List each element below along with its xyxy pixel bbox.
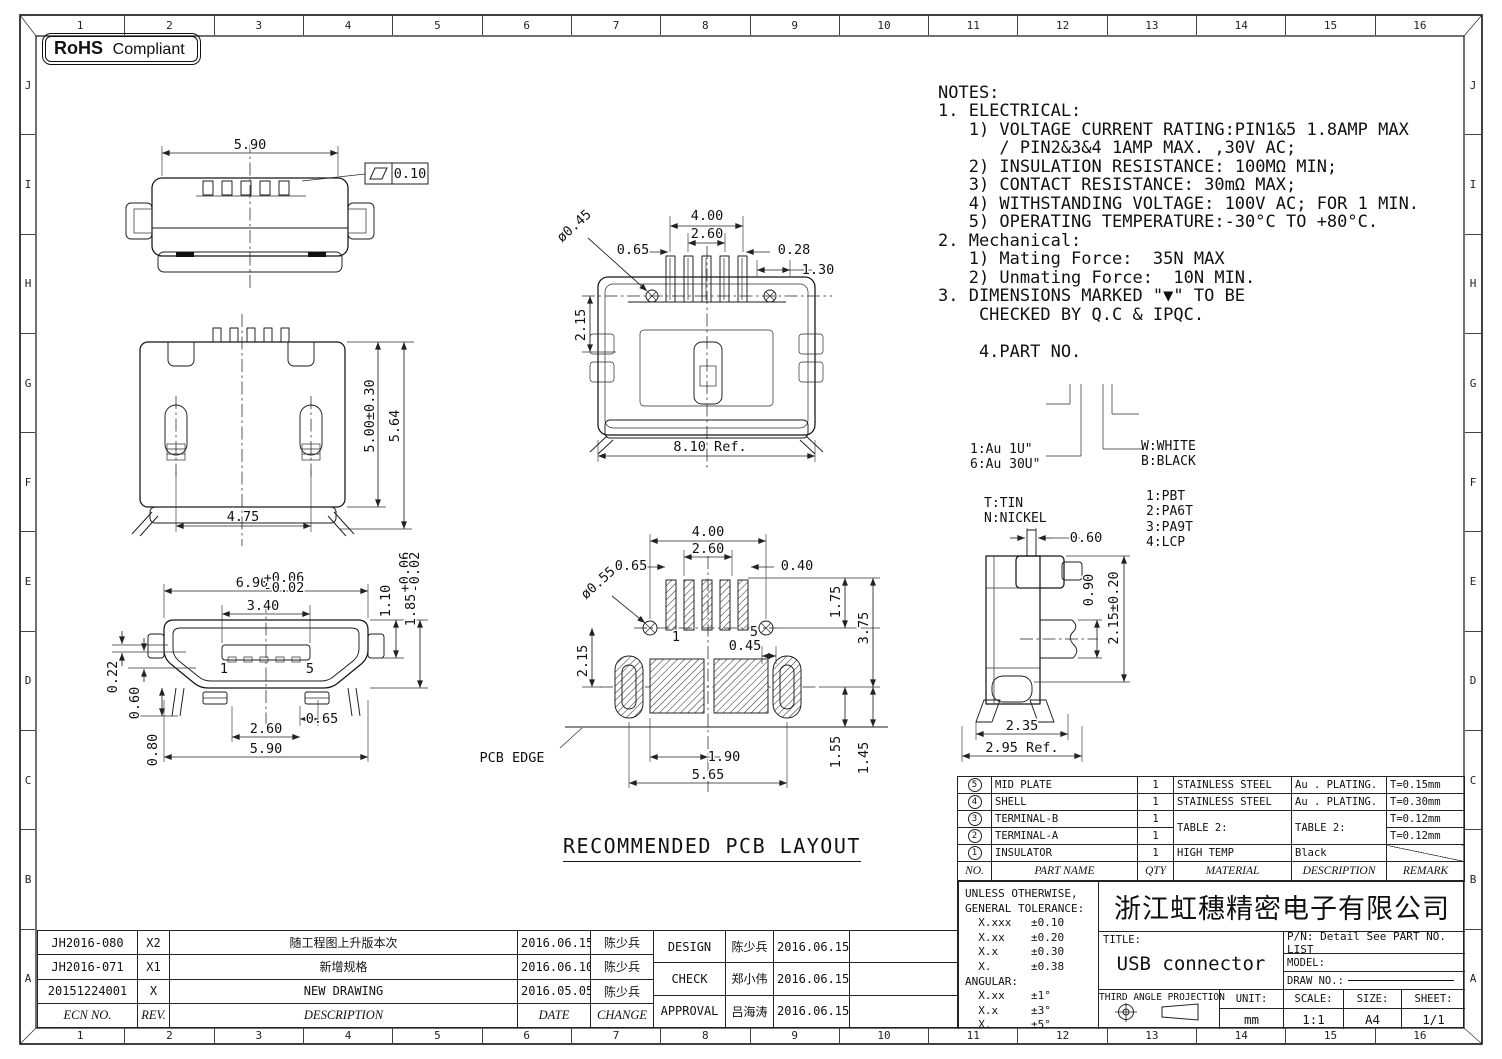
unit-cell: UNIT: mm bbox=[1219, 989, 1283, 1029]
grid-row-label: J bbox=[1465, 36, 1481, 135]
part-name: INSULATOR bbox=[992, 845, 1138, 862]
dim-label: 1 bbox=[220, 661, 228, 677]
grid-row-label: D bbox=[1465, 632, 1481, 731]
dim-label: 0.60 bbox=[127, 687, 143, 720]
title-label: TITLE: bbox=[1103, 934, 1279, 946]
grid-row-label: E bbox=[1465, 532, 1481, 631]
grid-col-label: 14 bbox=[1197, 1028, 1286, 1043]
grid-col-label: 9 bbox=[751, 16, 840, 35]
note-line: 5) OPERATING TEMPERATURE:-30°C TO +80°C. bbox=[938, 213, 1419, 232]
dim-label: 0.28 bbox=[778, 242, 811, 258]
grid-col-label: 6 bbox=[483, 16, 572, 35]
dim-label: 2.95 Ref. bbox=[985, 740, 1058, 756]
dim-label: 8.10 Ref. bbox=[673, 439, 746, 455]
change: CHANGE bbox=[591, 1003, 654, 1027]
grid-col-label: 8 bbox=[661, 16, 750, 35]
change: 陈少兵 bbox=[591, 955, 654, 979]
drawing-sheet: 5.900.105.00±0.305.644.756.90+0.06-0.023… bbox=[0, 0, 1502, 1059]
ecn-no: 20151224001 bbox=[38, 979, 138, 1003]
tolerance-label: UNLESS OTHERWISE, bbox=[965, 887, 1031, 902]
note-line: 3) CONTACT RESISTANCE: 30mΩ MAX; bbox=[938, 176, 1419, 195]
dim-label: 0.65 bbox=[615, 558, 648, 574]
tolerance-line: X.xx ±0.20 bbox=[965, 931, 1092, 946]
date: 2016.05.05 bbox=[518, 979, 591, 1003]
dim-label: 2.60 bbox=[691, 226, 724, 242]
note-line: NOTES: bbox=[938, 84, 1419, 103]
dim-label: 0.60 bbox=[1070, 530, 1103, 546]
note-line: / PIN2&3&4 1AMP MAX. ,30V AC; bbox=[938, 139, 1419, 158]
scale-value: 1:1 bbox=[1284, 1009, 1343, 1029]
part-material: STAINLESS STEEL bbox=[1174, 777, 1292, 794]
description: 新增规格 bbox=[170, 955, 518, 979]
tolerance-line: ANGULAR: bbox=[965, 975, 1092, 990]
tolerance-line: X. ±5° bbox=[965, 1018, 1092, 1033]
dim-label: 2.60 bbox=[692, 541, 725, 557]
part-remark-diagonal bbox=[1387, 845, 1465, 862]
tolerance-label: ANGULAR: bbox=[965, 975, 1031, 990]
part-description: Black bbox=[1292, 845, 1387, 862]
revision-row: JH2016-080 X2 随工程图上升版本次 2016.06.15 陈少兵 bbox=[38, 931, 654, 955]
grid-col-label: 5 bbox=[393, 1028, 482, 1043]
note-line: 1) Mating Force: 35N MAX bbox=[938, 250, 1419, 269]
note-line: 3. DIMENSIONS MARKED "▼" TO BE bbox=[938, 287, 1419, 306]
grid-row-label: G bbox=[21, 334, 35, 433]
grid-col-label: 3 bbox=[215, 16, 304, 35]
part-name: TERMINAL-B bbox=[992, 811, 1138, 828]
parts-header-row: NO. PART NAME QTY MATERIAL DESCRIPTION R… bbox=[958, 862, 1465, 881]
tolerance-line: X.xx ±1° bbox=[965, 989, 1092, 1004]
tolerance-value: ±0.30 bbox=[1031, 945, 1064, 960]
rohs-badge: RoHS Compliant bbox=[42, 33, 201, 65]
unit-value: mm bbox=[1220, 1009, 1283, 1029]
rohs-bold-text: RoHS bbox=[54, 38, 103, 58]
dim-label: 5 bbox=[306, 661, 314, 677]
dim-label: 5 bbox=[750, 624, 758, 640]
tolerance-value: ±0.20 bbox=[1031, 931, 1064, 946]
rohs-rest-text: Compliant bbox=[113, 41, 185, 58]
note-line: 1) VOLTAGE CURRENT RATING:PIN1&5 1.8AMP … bbox=[938, 121, 1419, 140]
revision-row: ECN NO. REV. DESCRIPTION DATE CHANGE bbox=[38, 1003, 654, 1027]
rev: REV. bbox=[138, 1003, 170, 1027]
grid-col-label: 10 bbox=[840, 16, 929, 35]
grid-row-label: G bbox=[1465, 334, 1481, 433]
view-top bbox=[126, 140, 428, 288]
part-material: STAINLESS STEEL bbox=[1174, 794, 1292, 811]
date: 2016.06.15 bbox=[518, 931, 591, 955]
dim-label: 0.40 bbox=[781, 558, 814, 574]
part-qty: 1 bbox=[1138, 828, 1174, 845]
grid-col-label: 6 bbox=[483, 1028, 572, 1043]
grid-col-label: 7 bbox=[572, 16, 661, 35]
rev: X2 bbox=[138, 931, 170, 955]
tolerance-value: ±5° bbox=[1031, 1018, 1051, 1033]
note-line: CHECKED BY Q.C & IPQC. bbox=[938, 306, 1419, 325]
model-cell: MODEL: bbox=[1283, 953, 1465, 971]
grid-col-label: 10 bbox=[840, 1028, 929, 1043]
dim-label: 5.65 bbox=[692, 767, 725, 783]
ecn-no: JH2016-071 bbox=[38, 955, 138, 979]
sheet-cell: SHEET: 1/1 bbox=[1401, 989, 1465, 1029]
size-value: A4 bbox=[1344, 1009, 1401, 1029]
grid-col-label: 5 bbox=[393, 16, 482, 35]
change: 陈少兵 bbox=[591, 979, 654, 1003]
description: NEW DRAWING bbox=[170, 979, 518, 1003]
part-remark: T=0.12mm bbox=[1387, 811, 1465, 828]
part-name: SHELL bbox=[992, 794, 1138, 811]
dim-label: 1.45 bbox=[856, 742, 872, 775]
grid-row-label: C bbox=[1465, 731, 1481, 830]
title-cell: TITLE: USB connector bbox=[1098, 931, 1283, 989]
note-line: 2) Unmating Force: 10N MIN. bbox=[938, 269, 1419, 288]
dim-label: 1.30 bbox=[802, 262, 835, 278]
parts-row: 5 MID PLATE 1 STAINLESS STEEL Au . PLATI… bbox=[958, 777, 1465, 794]
tolerance-label: GENERAL TOLERANCE: bbox=[965, 902, 1031, 917]
grid-row-label: B bbox=[1465, 830, 1481, 929]
ecn-no: ECN NO. bbox=[38, 1003, 138, 1027]
sheet-label: SHEET: bbox=[1402, 990, 1465, 1009]
grid-row-label: A bbox=[1465, 930, 1481, 1028]
change: 陈少兵 bbox=[591, 931, 654, 955]
note-line: 4.PART NO. bbox=[938, 343, 1419, 362]
grid-col-label: 3 bbox=[215, 1028, 304, 1043]
title-block: UNLESS OTHERWISE, GENERAL TOLERANCE: X.x… bbox=[957, 880, 1464, 1028]
part-no-circle: 2 bbox=[968, 829, 982, 843]
note-line: 2. Mechanical: bbox=[938, 232, 1419, 251]
grid-col-label: 15 bbox=[1286, 1028, 1375, 1043]
dim-label: 2.60 bbox=[250, 721, 283, 737]
col-description: DESCRIPTION bbox=[1292, 862, 1387, 881]
dim-label: 0.65 bbox=[617, 242, 650, 258]
tolerance-line: UNLESS OTHERWISE, bbox=[965, 887, 1092, 902]
dim-label: 0.45 bbox=[729, 638, 762, 654]
grid-col-label: 9 bbox=[751, 1028, 840, 1043]
approval-role: APPROVAL bbox=[654, 995, 726, 1027]
note-line: 4) WITHSTANDING VOLTAGE: 100V AC; FOR 1 … bbox=[938, 195, 1419, 214]
ecn-no: JH2016-080 bbox=[38, 931, 138, 955]
grid-band-bottom: 12345678910111213141516 bbox=[36, 1028, 1464, 1043]
dim-label: 0.10 bbox=[394, 166, 427, 182]
dim-label: -0.02 bbox=[407, 552, 423, 593]
dim-label: 4.00 bbox=[691, 208, 724, 224]
approval-sign bbox=[850, 931, 958, 963]
part-description-merged: TABLE 2: bbox=[1292, 811, 1387, 845]
description: DESCRIPTION bbox=[170, 1003, 518, 1027]
size-cell: SIZE: A4 bbox=[1343, 989, 1401, 1029]
tolerance-label: X.xx bbox=[965, 931, 1031, 946]
part-name: MID PLATE bbox=[992, 777, 1138, 794]
tolerance-line: X.x ±0.30 bbox=[965, 945, 1092, 960]
part-qty: 1 bbox=[1138, 777, 1174, 794]
dim-label: 1.10 bbox=[378, 585, 394, 618]
dim-label: 3.40 bbox=[247, 598, 280, 614]
dim-label: 0.90 bbox=[1081, 574, 1097, 607]
legend-line: 2:PA6T bbox=[1146, 504, 1193, 520]
tolerance-label: X.x bbox=[965, 1004, 1031, 1019]
legend-line: 4:LCP bbox=[1146, 535, 1193, 551]
dim-label: 3.75 bbox=[856, 612, 872, 645]
tolerance-value: ±3° bbox=[1031, 1004, 1051, 1019]
dim-label: 2.15 bbox=[573, 309, 589, 342]
scale-label: SCALE: bbox=[1284, 990, 1343, 1009]
dim-label: 1.90 bbox=[708, 749, 741, 765]
part-remark: T=0.15mm bbox=[1387, 777, 1465, 794]
grid-col-label: 2 bbox=[125, 1028, 214, 1043]
approval-date: 2016.06.15 bbox=[774, 995, 850, 1027]
grid-row-label: E bbox=[21, 532, 35, 631]
tolerance-label: X.x bbox=[965, 945, 1031, 960]
company-name: 浙江虹穗精密电子有限公司 bbox=[1098, 881, 1465, 931]
approval-name: 吕海涛 bbox=[726, 995, 774, 1027]
col-qty: QTY bbox=[1138, 862, 1174, 881]
dim-label: 2.15±0.20 bbox=[1106, 571, 1122, 644]
grid-row-label: H bbox=[1465, 235, 1481, 334]
grid-col-label: 13 bbox=[1108, 1028, 1197, 1043]
approval-table: DESIGN 陈少兵 2016.06.15 CHECK 郑小伟 2016.06.… bbox=[653, 930, 958, 1028]
dim-label: ø0.45 bbox=[554, 206, 595, 245]
tolerance-value: ±0.38 bbox=[1031, 960, 1064, 975]
tolerance-label: X. bbox=[965, 960, 1031, 975]
col-no: NO. bbox=[958, 862, 992, 881]
grid-row-label: J bbox=[21, 36, 35, 135]
dim-label: 2.35 bbox=[1006, 718, 1039, 734]
draw-no-blank-line bbox=[1348, 980, 1454, 981]
tolerance-value: ±1° bbox=[1031, 989, 1051, 1004]
draw-no-label: DRAW NO.: bbox=[1287, 975, 1344, 987]
grid-row-label: C bbox=[21, 731, 35, 830]
rev: X1 bbox=[138, 955, 170, 979]
parts-table: 5 MID PLATE 1 STAINLESS STEEL Au . PLATI… bbox=[957, 776, 1465, 881]
part-remark: T=0.30mm bbox=[1387, 794, 1465, 811]
col-part-name: PART NAME bbox=[992, 862, 1138, 881]
dim-label: 4.00 bbox=[692, 524, 725, 540]
part-name: TERMINAL-A bbox=[992, 828, 1138, 845]
dim-label: 4.75 bbox=[227, 509, 260, 525]
approval-row: CHECK 郑小伟 2016.06.15 bbox=[654, 963, 958, 995]
dim-label: 1.55 bbox=[828, 736, 844, 769]
tolerance-label: X.xxx bbox=[965, 916, 1031, 931]
approval-date: 2016.06.15 bbox=[774, 963, 850, 995]
view-side bbox=[962, 528, 1130, 762]
grid-row-label: F bbox=[21, 433, 35, 532]
grid-row-label: D bbox=[21, 632, 35, 731]
dim-label: 0.65 bbox=[306, 711, 339, 727]
note-line: 1. ELECTRICAL: bbox=[938, 102, 1419, 121]
parts-row: 3 TERMINAL-B 1 TABLE 2: TABLE 2: T=0.12m… bbox=[958, 811, 1465, 828]
sheet-value: 1/1 bbox=[1402, 1009, 1465, 1029]
note-line: 2) INSULATION RESISTANCE: 100MΩ MIN; bbox=[938, 158, 1419, 177]
part-no-legend-lines bbox=[1046, 384, 1144, 456]
draw-no-cell: DRAW NO.: bbox=[1283, 971, 1465, 989]
legend-line: T:TIN bbox=[984, 496, 1047, 512]
third-angle-projection-icon bbox=[1104, 1003, 1214, 1022]
dim-label: 1 bbox=[672, 629, 680, 645]
legend-line: N:NICKEL bbox=[984, 511, 1047, 527]
dim-label: 0.80 bbox=[145, 734, 161, 767]
grid-col-label: 1 bbox=[36, 1028, 125, 1043]
legend-materials: 1:PBT2:PA6T3:PA9T4:LCP bbox=[1146, 442, 1193, 551]
tolerance-line: X.x ±3° bbox=[965, 1004, 1092, 1019]
tolerance-label: X. bbox=[965, 1018, 1031, 1033]
drawing-title: USB connector bbox=[1103, 953, 1279, 975]
approval-row: DESIGN 陈少兵 2016.06.15 bbox=[654, 931, 958, 963]
tolerance-line: X.xxx ±0.10 bbox=[965, 916, 1092, 931]
legend-line: 1:PBT bbox=[1146, 489, 1193, 505]
part-description: Au . PLATING. bbox=[1292, 794, 1387, 811]
dim-label: 5.00±0.30 bbox=[362, 379, 378, 452]
dim-label: 1.75 bbox=[828, 586, 844, 619]
col-remark: REMARK bbox=[1387, 862, 1465, 881]
grid-row-label: I bbox=[1465, 135, 1481, 234]
revision-row: JH2016-071 X1 新增规格 2016.06.10 陈少兵 bbox=[38, 955, 654, 979]
parts-row: 1 INSULATOR 1 HIGH TEMP Black bbox=[958, 845, 1465, 862]
scale-cell: SCALE: 1:1 bbox=[1283, 989, 1343, 1029]
part-qty: 1 bbox=[1138, 794, 1174, 811]
grid-col-label: 8 bbox=[661, 1028, 750, 1043]
description: 随工程图上升版本次 bbox=[170, 931, 518, 955]
approval-role: CHECK bbox=[654, 963, 726, 995]
approval-date: 2016.06.15 bbox=[774, 931, 850, 963]
grid-col-label: 4 bbox=[304, 1028, 393, 1043]
dim-label: 5.90 bbox=[234, 137, 267, 153]
revision-row: 20151224001 X NEW DRAWING 2016.05.05 陈少兵 bbox=[38, 979, 654, 1003]
grid-band-right: JIHGFEDCBA bbox=[1465, 36, 1481, 1028]
rev: X bbox=[138, 979, 170, 1003]
projection-label: THIRD ANGLE PROJECTION bbox=[1099, 992, 1219, 1003]
dim-label: PCB EDGE bbox=[479, 750, 544, 766]
date: 2016.06.10 bbox=[518, 955, 591, 979]
tolerance-label: X.xx bbox=[965, 989, 1031, 1004]
tolerance-value: ±0.10 bbox=[1031, 916, 1064, 931]
grid-row-label: F bbox=[1465, 433, 1481, 532]
approval-sign bbox=[850, 963, 958, 995]
dim-label: 0.22 bbox=[105, 661, 121, 694]
note-line bbox=[938, 324, 1419, 343]
approval-name: 郑小伟 bbox=[726, 963, 774, 995]
grid-band-left: JIHGFEDCBA bbox=[21, 36, 35, 1028]
dim-label: 2.15 bbox=[575, 645, 591, 678]
part-no-circle: 1 bbox=[968, 846, 982, 860]
grid-row-label: A bbox=[21, 930, 35, 1028]
grid-row-label: I bbox=[21, 135, 35, 234]
part-qty: 1 bbox=[1138, 845, 1174, 862]
grid-col-label: 7 bbox=[572, 1028, 661, 1043]
grid-row-label: B bbox=[21, 830, 35, 929]
approval-row: APPROVAL 吕海涛 2016.06.15 bbox=[654, 995, 958, 1027]
grid-col-label: 16 bbox=[1376, 1028, 1464, 1043]
parts-row: 4 SHELL 1 STAINLESS STEEL Au . PLATING. … bbox=[958, 794, 1465, 811]
rohs-badge-inner: RoHS Compliant bbox=[45, 36, 198, 62]
part-description: Au . PLATING. bbox=[1292, 777, 1387, 794]
dim-label: 5.90 bbox=[250, 741, 283, 757]
approval-role: DESIGN bbox=[654, 931, 726, 963]
part-material-merged: TABLE 2: bbox=[1174, 811, 1292, 845]
part-material: HIGH TEMP bbox=[1174, 845, 1292, 862]
dim-label: 1.85 bbox=[403, 594, 419, 627]
approval-sign bbox=[850, 995, 958, 1027]
dim-label: -0.02 bbox=[264, 580, 305, 596]
tolerance-line: X. ±0.38 bbox=[965, 960, 1092, 975]
col-material: MATERIAL bbox=[1174, 862, 1292, 881]
projection-cell: THIRD ANGLE PROJECTION bbox=[1098, 989, 1219, 1029]
part-number-cell: P/N: Detail See PART NO. LIST bbox=[1283, 931, 1465, 953]
tolerance-block: UNLESS OTHERWISE, GENERAL TOLERANCE: X.x… bbox=[958, 881, 1098, 1029]
date: DATE bbox=[518, 1003, 591, 1027]
pcb-layout-heading: RECOMMENDED PCB LAYOUT bbox=[563, 834, 861, 862]
legend-finish: T:TINN:NICKEL bbox=[984, 449, 1047, 527]
approval-name: 陈少兵 bbox=[726, 931, 774, 963]
grid-row-label: H bbox=[21, 235, 35, 334]
legend-line: 3:PA9T bbox=[1146, 520, 1193, 536]
part-no-circle: 3 bbox=[968, 812, 982, 826]
dim-label: 5.64 bbox=[387, 410, 403, 443]
part-no-circle: 4 bbox=[968, 795, 982, 809]
notes-block: NOTES:1. ELECTRICAL: 1) VOLTAGE CURRENT … bbox=[938, 28, 1419, 361]
part-qty: 1 bbox=[1138, 811, 1174, 828]
part-no-circle: 5 bbox=[968, 778, 982, 792]
unit-label: UNIT: bbox=[1220, 990, 1283, 1009]
grid-col-label: 4 bbox=[304, 16, 393, 35]
part-remark: T=0.12mm bbox=[1387, 828, 1465, 845]
size-label: SIZE: bbox=[1344, 990, 1401, 1009]
revision-table: JH2016-080 X2 随工程图上升版本次 2016.06.15 陈少兵 J… bbox=[37, 930, 654, 1028]
tolerance-line: GENERAL TOLERANCE: bbox=[965, 902, 1092, 917]
